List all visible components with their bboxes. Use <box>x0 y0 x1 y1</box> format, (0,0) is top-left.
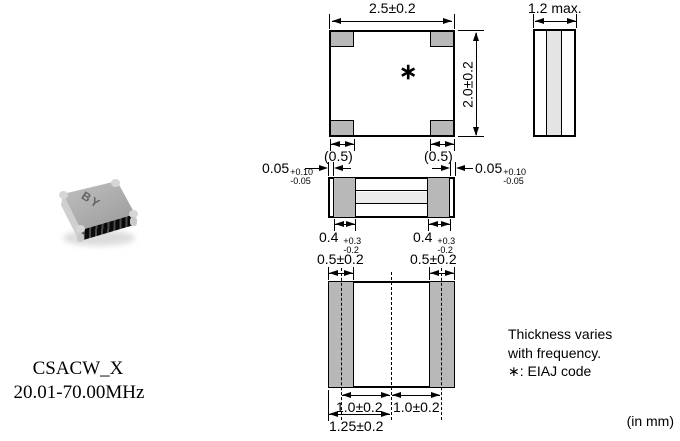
arrowhead <box>429 221 438 227</box>
leader-line <box>305 168 319 169</box>
arrowhead <box>473 127 479 136</box>
arrowhead <box>342 392 351 398</box>
arrowhead <box>441 165 450 171</box>
arrowhead <box>535 18 544 24</box>
extension-tick <box>329 14 330 29</box>
arrowhead <box>443 18 452 24</box>
dim-pitch-right-label: 1.0±0.2 <box>393 400 440 415</box>
dim-gap-left-label: 0.05+0.10-0.05 <box>240 161 313 186</box>
extension-tick <box>354 139 355 151</box>
arrowhead <box>430 270 439 276</box>
note-line: with frequency. <box>508 344 612 363</box>
inner-line <box>356 190 427 191</box>
arrowhead <box>381 411 390 417</box>
extension-line <box>458 136 484 137</box>
dim-height-label: 2.0±0.2 <box>461 57 476 113</box>
eiaj-code-mark: ∗ <box>399 64 417 79</box>
units-note: (in mm) <box>598 414 674 429</box>
dim-gap-right-label: 0.05+0.10-0.05 <box>475 161 526 186</box>
arrowhead <box>431 392 440 398</box>
arrowhead <box>567 18 576 24</box>
inner-line <box>546 31 547 135</box>
dim-value: 0.05 <box>262 160 289 176</box>
arrowhead <box>392 392 401 398</box>
part-series-label: CSACW_X <box>8 359 148 379</box>
corner-standoff <box>76 225 85 233</box>
arrowhead <box>335 221 344 227</box>
dim-value: 0.4 <box>413 229 432 245</box>
extension-tick <box>454 139 455 151</box>
leader-line <box>343 168 351 169</box>
corner-electrode <box>330 31 354 47</box>
extension-tick <box>353 267 354 280</box>
extension-tick <box>454 267 455 280</box>
dim-value: 0.4 <box>319 229 338 245</box>
arrowhead <box>445 141 454 147</box>
dim-pitch-left-label: 1.0±0.2 <box>336 400 383 415</box>
corner-standoff <box>111 179 120 187</box>
component-photo: BY <box>45 178 145 253</box>
arrowhead <box>319 165 328 171</box>
dim-terminal-left-label: 0.5±0.2 <box>317 252 364 267</box>
dim-terminal-right-label: 0.5±0.2 <box>410 252 457 267</box>
leader-line <box>432 168 441 169</box>
note-line: Thickness varies <box>508 325 612 344</box>
inner-line <box>356 203 427 204</box>
dim-center-offset-label: 1.25±0.2 <box>329 419 383 434</box>
dim-corner-right-label: (0.5) <box>424 149 453 164</box>
inner-line <box>561 31 562 135</box>
arrowhead <box>331 141 340 147</box>
ceramic-element <box>356 192 427 203</box>
extension-tick <box>450 162 451 176</box>
corner-electrode <box>330 120 354 136</box>
tolerance-minus: -0.05 <box>290 177 313 186</box>
arrowhead <box>334 165 343 171</box>
arrowhead <box>445 270 454 276</box>
arrowhead <box>431 141 440 147</box>
arrowhead <box>344 270 353 276</box>
corner-electrode <box>430 31 454 47</box>
arrowhead <box>332 18 341 24</box>
corner-standoff <box>59 191 68 199</box>
part-frequency-range: 20.01-70.00MHz <box>0 383 158 403</box>
note-line: ∗: EIAJ code <box>508 362 612 381</box>
dimension-drawing: BY CSACW_X 20.01-70.00MHz ∗ 2.5±0.2 2.0±… <box>0 0 680 441</box>
terminal-block <box>333 177 356 218</box>
arrowhead <box>346 221 355 227</box>
arrowhead <box>345 141 354 147</box>
corner-standoff <box>130 217 137 226</box>
extension-tick <box>454 14 455 29</box>
corner-electrode <box>430 120 454 136</box>
corner-standoff <box>77 233 84 242</box>
thickness-note: Thickness varies with frequency. ∗: EIAJ… <box>508 325 612 381</box>
dim-width-label: 2.5±0.2 <box>369 1 416 16</box>
arrowhead <box>473 32 479 41</box>
dim-value: 0.05 <box>475 160 502 176</box>
dim-line <box>332 21 452 22</box>
dim-line <box>476 33 477 135</box>
centerline <box>441 268 442 420</box>
extension-line <box>458 30 484 31</box>
arrowhead <box>441 221 450 227</box>
ceramic-layer <box>547 31 561 135</box>
arrowhead <box>329 411 338 417</box>
terminal-band <box>429 281 455 388</box>
terminal-block <box>427 177 450 218</box>
arrowhead <box>456 165 465 171</box>
leader-line <box>465 168 473 169</box>
arrowhead <box>381 392 390 398</box>
extension-tick <box>328 162 329 176</box>
arrowhead <box>329 270 338 276</box>
extension-tick <box>576 14 577 28</box>
tolerance-minus: -0.05 <box>503 177 526 186</box>
dim-thickness-label: 1.2 max. <box>528 1 582 16</box>
